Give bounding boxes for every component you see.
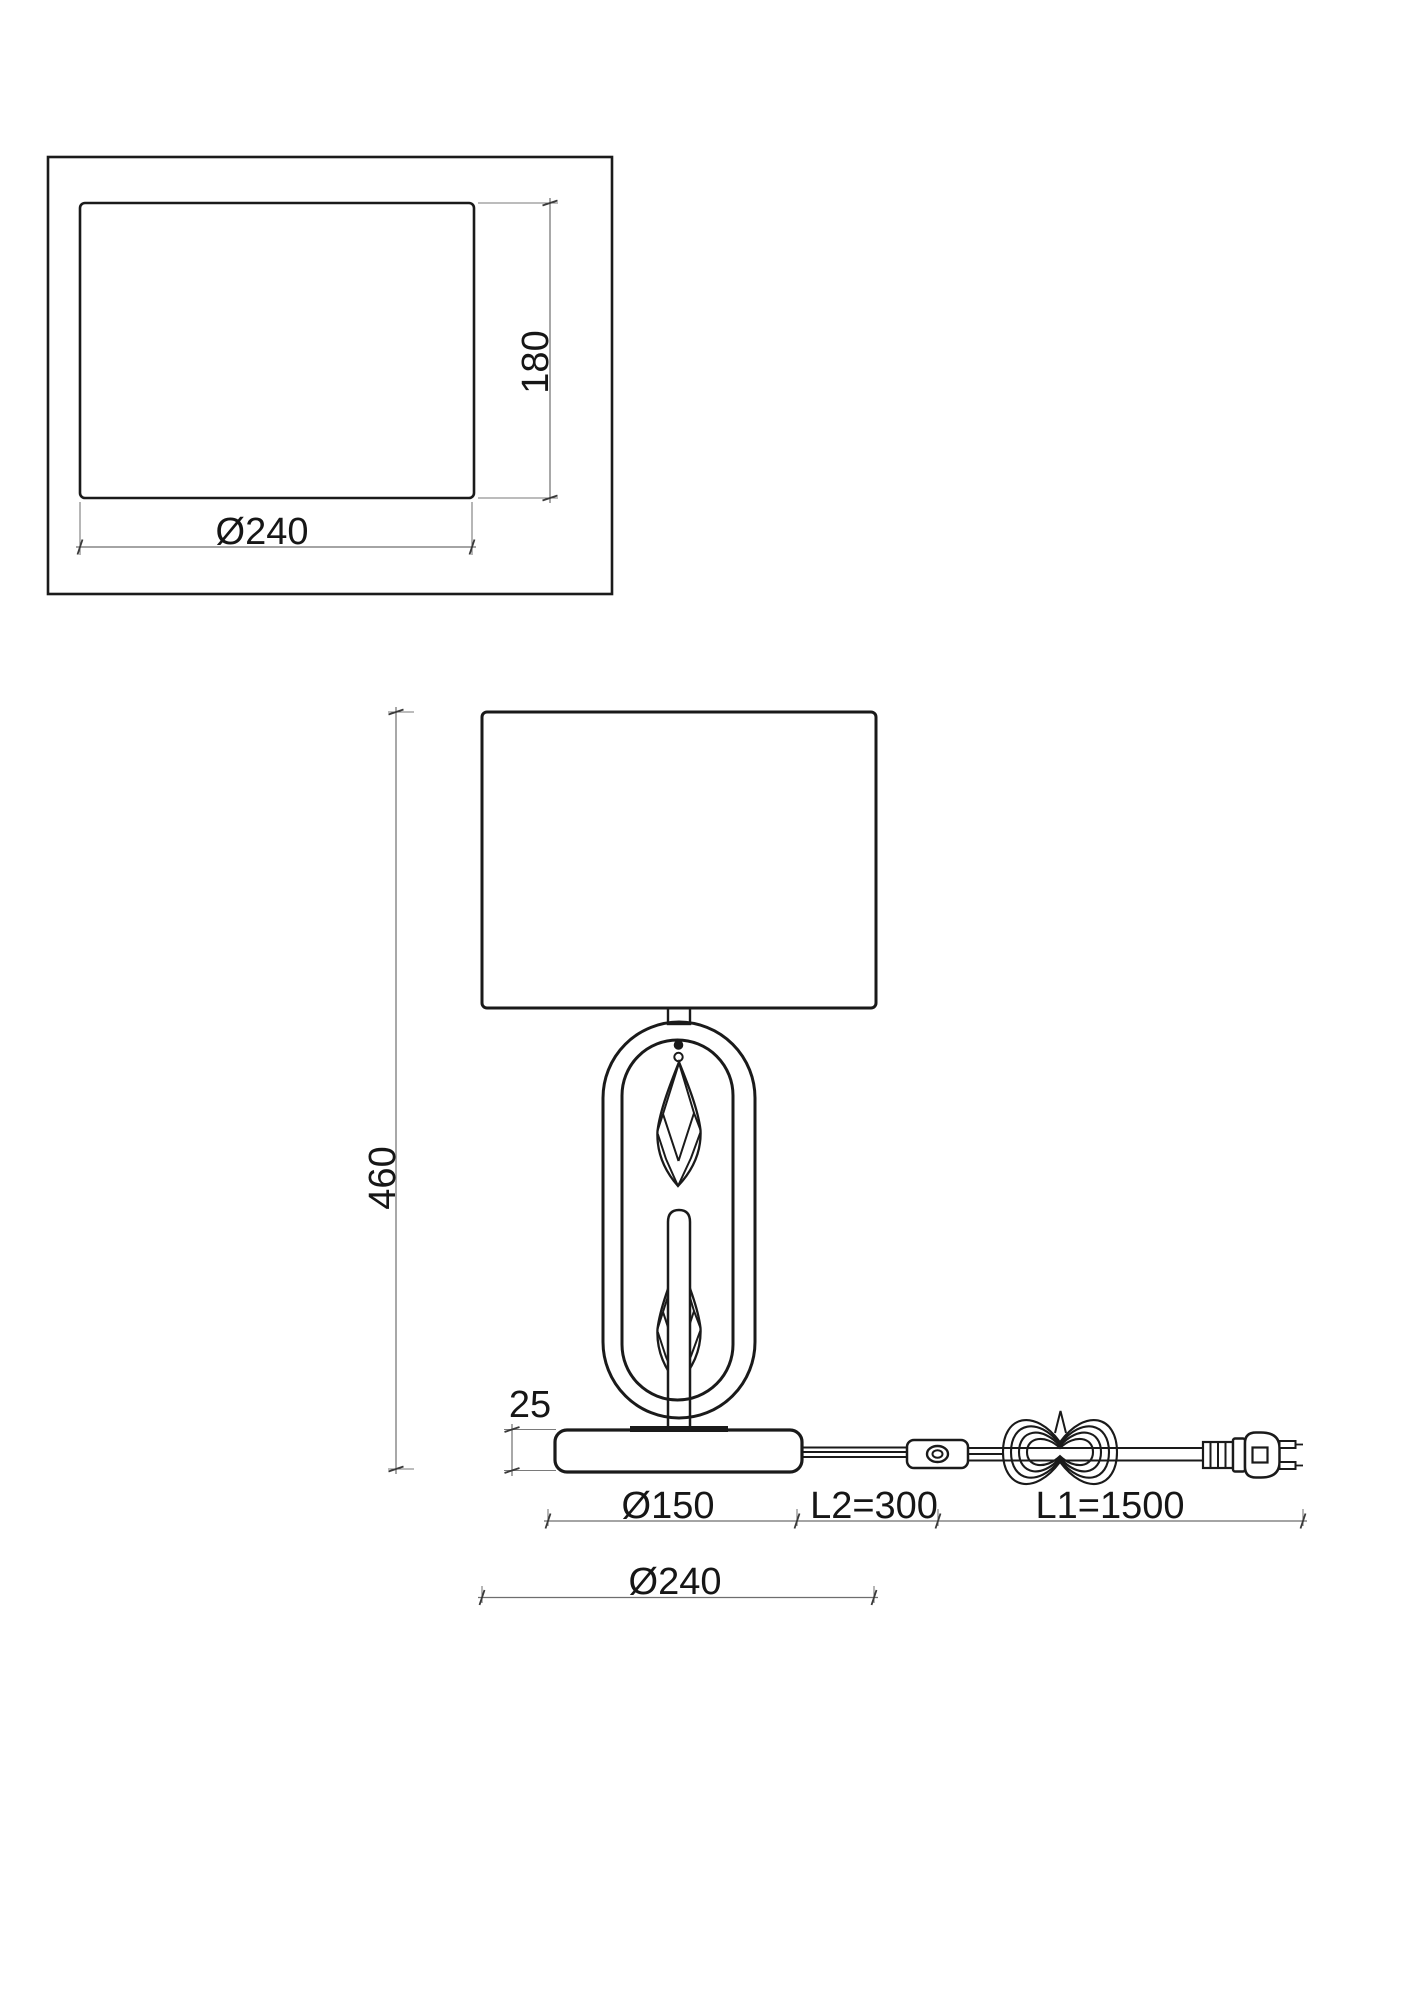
cord-switch	[907, 1440, 968, 1468]
dim-label-depth: 180	[515, 330, 557, 393]
cord-segment-1	[802, 1448, 907, 1458]
base-mount-plate	[630, 1426, 728, 1432]
dim-shade-depth: 180	[478, 198, 558, 503]
dim-label-width-top: Ø240	[216, 511, 309, 553]
cord-coil	[1003, 1411, 1117, 1484]
lamp-base	[555, 1430, 802, 1472]
coil-loop	[1011, 1426, 1109, 1477]
hanger-ring	[674, 1053, 682, 1061]
dim-label-base-thickness: 25	[509, 1384, 551, 1426]
power-plug	[1203, 1433, 1303, 1478]
plug-prong	[1280, 1462, 1296, 1469]
lamp-dimension-drawing: 180 Ø240 460	[0, 0, 1413, 2000]
dim-shade-width-front: Ø240	[478, 1561, 878, 1605]
drawing-canvas: 180 Ø240 460	[0, 0, 1413, 2000]
front-view: 460	[362, 707, 1307, 1605]
plug-prong	[1280, 1441, 1296, 1448]
dim-base-and-cord: Ø150 L2=300 L1=1500	[544, 1485, 1307, 1529]
crystal-shape	[657, 1062, 700, 1186]
switch-button-ring	[927, 1446, 948, 1462]
dim-label-cord-l2: L2=300	[810, 1485, 938, 1527]
plug-body	[1245, 1433, 1280, 1478]
shade-top-outline	[80, 203, 474, 498]
dim-total-height: 460	[362, 707, 414, 1474]
dim-label-cord-l1: L1=1500	[1036, 1485, 1185, 1527]
dim-label-total-height: 460	[362, 1146, 404, 1209]
dim-label-base-diameter: Ø150	[622, 1485, 715, 1527]
dim-base-thickness: 25	[504, 1384, 556, 1476]
plug-collar	[1233, 1439, 1245, 1472]
lamp-shade	[482, 712, 876, 1008]
top-view: 180 Ø240	[48, 157, 612, 594]
dim-label-shade-width: Ø240	[629, 1561, 722, 1603]
coil-tie-tip	[1055, 1411, 1066, 1433]
coil-loop	[1019, 1433, 1101, 1472]
crystal-drop-upper	[657, 1040, 700, 1186]
dim-shade-width-top: Ø240	[76, 502, 476, 555]
